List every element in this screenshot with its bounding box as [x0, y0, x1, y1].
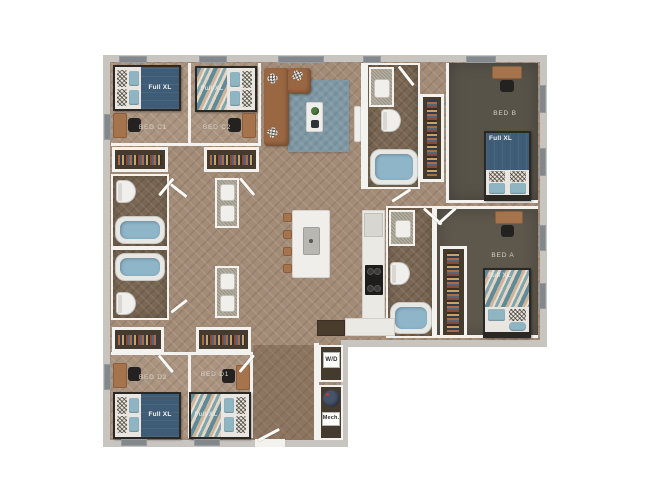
pillow-icon: [117, 416, 127, 433]
stool-icon: [283, 213, 292, 222]
bed-b-pillow-zone: [486, 170, 529, 195]
room-label-c2: BED C2: [203, 125, 231, 132]
pillow-icon: [509, 322, 526, 331]
pillow-icon: [129, 398, 139, 413]
pillow-icon: [129, 417, 139, 432]
pillow-icon: [230, 72, 240, 87]
floorplan-image: Full XL BED C1 Full XL BED C2: [0, 0, 650, 490]
desk-a: [495, 211, 523, 224]
bathtub-icon: [115, 253, 165, 281]
pillow-icon: [242, 90, 252, 107]
fridge-icon: [364, 213, 383, 237]
plant-icon: [311, 107, 319, 115]
sink-icon: [220, 184, 235, 201]
pillow-icon: [236, 416, 246, 433]
cooktop-icon: [365, 265, 383, 295]
pillow-icon: [489, 171, 505, 182]
toilet-icon: [116, 292, 136, 315]
laundry-room: W/D: [319, 345, 343, 382]
tv-console: [354, 106, 361, 142]
bathtub-icon: [390, 302, 432, 334]
kitchen-island: [292, 210, 330, 278]
window-icon: [539, 85, 546, 113]
room-label-a: BED A: [491, 253, 514, 260]
bed-b-blanket: Full XL: [486, 133, 529, 170]
pillow-icon: [224, 398, 234, 413]
chair-a: [501, 225, 514, 237]
bed-c1-blanket: Full XL: [141, 67, 179, 109]
hanging-clothes-icon: [427, 100, 437, 176]
bathroom-lower-left: [111, 248, 169, 320]
room-label-d1: BED D1: [201, 372, 229, 379]
hanging-clothes-icon: [118, 155, 162, 165]
bed-c2: Full XL: [195, 66, 257, 112]
water-heater-icon: [323, 390, 340, 407]
bed-a: Full XL: [483, 268, 531, 338]
room-bed-b: BED B Full XL: [446, 63, 538, 203]
bed-a-blanket: Full XL: [485, 270, 529, 307]
window-icon: [539, 225, 546, 251]
coffee-table: [306, 102, 323, 132]
bed-a-pillow-zone: [485, 307, 529, 332]
window-icon: [363, 56, 381, 63]
headboard: [485, 332, 529, 336]
bed-d2-pillow-zone: [115, 394, 141, 437]
toilet-icon: [390, 262, 410, 285]
toilet-icon: [381, 109, 401, 132]
window-icon: [104, 114, 111, 140]
pillow-icon: [236, 397, 246, 414]
window-icon: [119, 56, 147, 63]
desk-c1: [113, 113, 127, 138]
pillow-icon: [488, 309, 505, 321]
hanging-clothes-icon: [118, 335, 158, 345]
pillow-icon: [117, 70, 127, 87]
room-bed-d2: BED D2 Full XL: [111, 352, 191, 438]
bed-c2-blanket: Full XL: [197, 68, 227, 110]
sink-icon: [220, 205, 235, 222]
kitchen-counter: [362, 210, 385, 322]
bed-d1-blanket: Full XL: [191, 394, 221, 437]
pillow-icon: [230, 91, 240, 106]
heater-valve-icon: [326, 393, 329, 396]
bed-b-size-label: Full XL: [489, 136, 512, 143]
window-icon: [466, 56, 496, 63]
pillow-icon: [489, 183, 505, 194]
desk-b: [492, 66, 522, 79]
window-icon: [121, 439, 147, 446]
stool-icon: [283, 247, 292, 256]
closet-a: [440, 246, 467, 338]
vanity-upper-left: [215, 178, 239, 228]
bed-a-size-label: Full XL: [488, 273, 511, 280]
bed-d2: Full XL: [113, 392, 181, 439]
bed-d1-size-label: Full XL: [194, 412, 217, 419]
toilet-icon: [116, 180, 136, 203]
desk-d2: [113, 363, 127, 388]
closet-c1: [112, 147, 168, 172]
faucet-icon: [309, 239, 313, 243]
room-label-c1: BED C1: [139, 125, 167, 132]
vanity-bath3: [389, 210, 415, 246]
pillow-icon: [129, 90, 139, 105]
bathtub-icon: [370, 149, 418, 185]
bed-d1-pillow-zone: [221, 394, 249, 437]
corridor-shade: [253, 345, 314, 440]
stool-icon: [283, 264, 292, 273]
window-icon: [539, 283, 546, 309]
sink-icon: [220, 295, 235, 312]
window-icon: [199, 56, 227, 63]
bed-c2-pillow-zone: [227, 68, 255, 110]
room-bed-a: BED A Full XL: [434, 206, 538, 338]
bed-d1: Full XL: [189, 392, 251, 439]
vanity-lower-left: [215, 266, 239, 318]
bed-b: Full XL: [484, 131, 531, 201]
pillow-icon: [509, 309, 526, 321]
bathtub-icon: [115, 216, 165, 244]
bed-c2-size-label: Full XL: [200, 86, 223, 93]
sink-icon: [374, 79, 390, 98]
room-label-d2: BED D2: [139, 375, 167, 382]
kitchen-counter-bottom: [345, 318, 395, 336]
window-icon: [278, 56, 324, 63]
pillow-icon: [242, 71, 252, 88]
headboard: [486, 195, 529, 199]
window-icon: [539, 148, 546, 176]
room-bed-c1: Full XL BED C1: [111, 63, 191, 146]
pillow-icon: [510, 183, 526, 194]
pillow-icon: [117, 397, 127, 414]
sink-icon: [395, 220, 411, 238]
mechanical-label: Mech.: [323, 416, 340, 422]
bed-d2-blanket: Full XL: [141, 394, 179, 437]
closet-c2: [204, 147, 259, 172]
room-label-b: BED B: [493, 111, 517, 118]
closet-d1: [196, 327, 251, 352]
hanging-clothes-icon: [447, 252, 459, 332]
chair-b: [500, 80, 514, 92]
window-icon: [104, 364, 111, 390]
mechanical-room: Mech.: [319, 385, 343, 440]
bathroom-upper-left: [111, 174, 169, 248]
vanity-bath2: [369, 67, 394, 107]
sink-icon: [220, 273, 235, 290]
washer-dryer-label: W/D: [325, 357, 337, 363]
hanging-clothes-icon: [210, 155, 253, 165]
pantry-cabinet: [317, 320, 345, 336]
bed-c1-size-label: Full XL: [148, 85, 171, 92]
tray-icon: [311, 120, 319, 128]
room-bed-c2: Full XL BED C2: [191, 63, 261, 146]
stool-icon: [283, 230, 292, 239]
closet-b: [420, 94, 444, 182]
pillow-icon: [129, 71, 139, 86]
pillow-icon: [224, 417, 234, 432]
bed-c1-pillow-zone: [115, 67, 141, 109]
closet-d2: [112, 327, 164, 352]
bed-c1: Full XL: [113, 65, 181, 111]
pillow-icon: [510, 171, 526, 182]
hanging-clothes-icon: [202, 335, 245, 345]
window-icon: [194, 439, 220, 446]
mechanical-box: Mech.: [322, 412, 340, 426]
pillow-icon: [117, 89, 127, 106]
desk-c2: [242, 113, 256, 138]
washer-dryer-box: W/D: [323, 352, 340, 368]
bed-d2-size-label: Full XL: [148, 412, 171, 419]
